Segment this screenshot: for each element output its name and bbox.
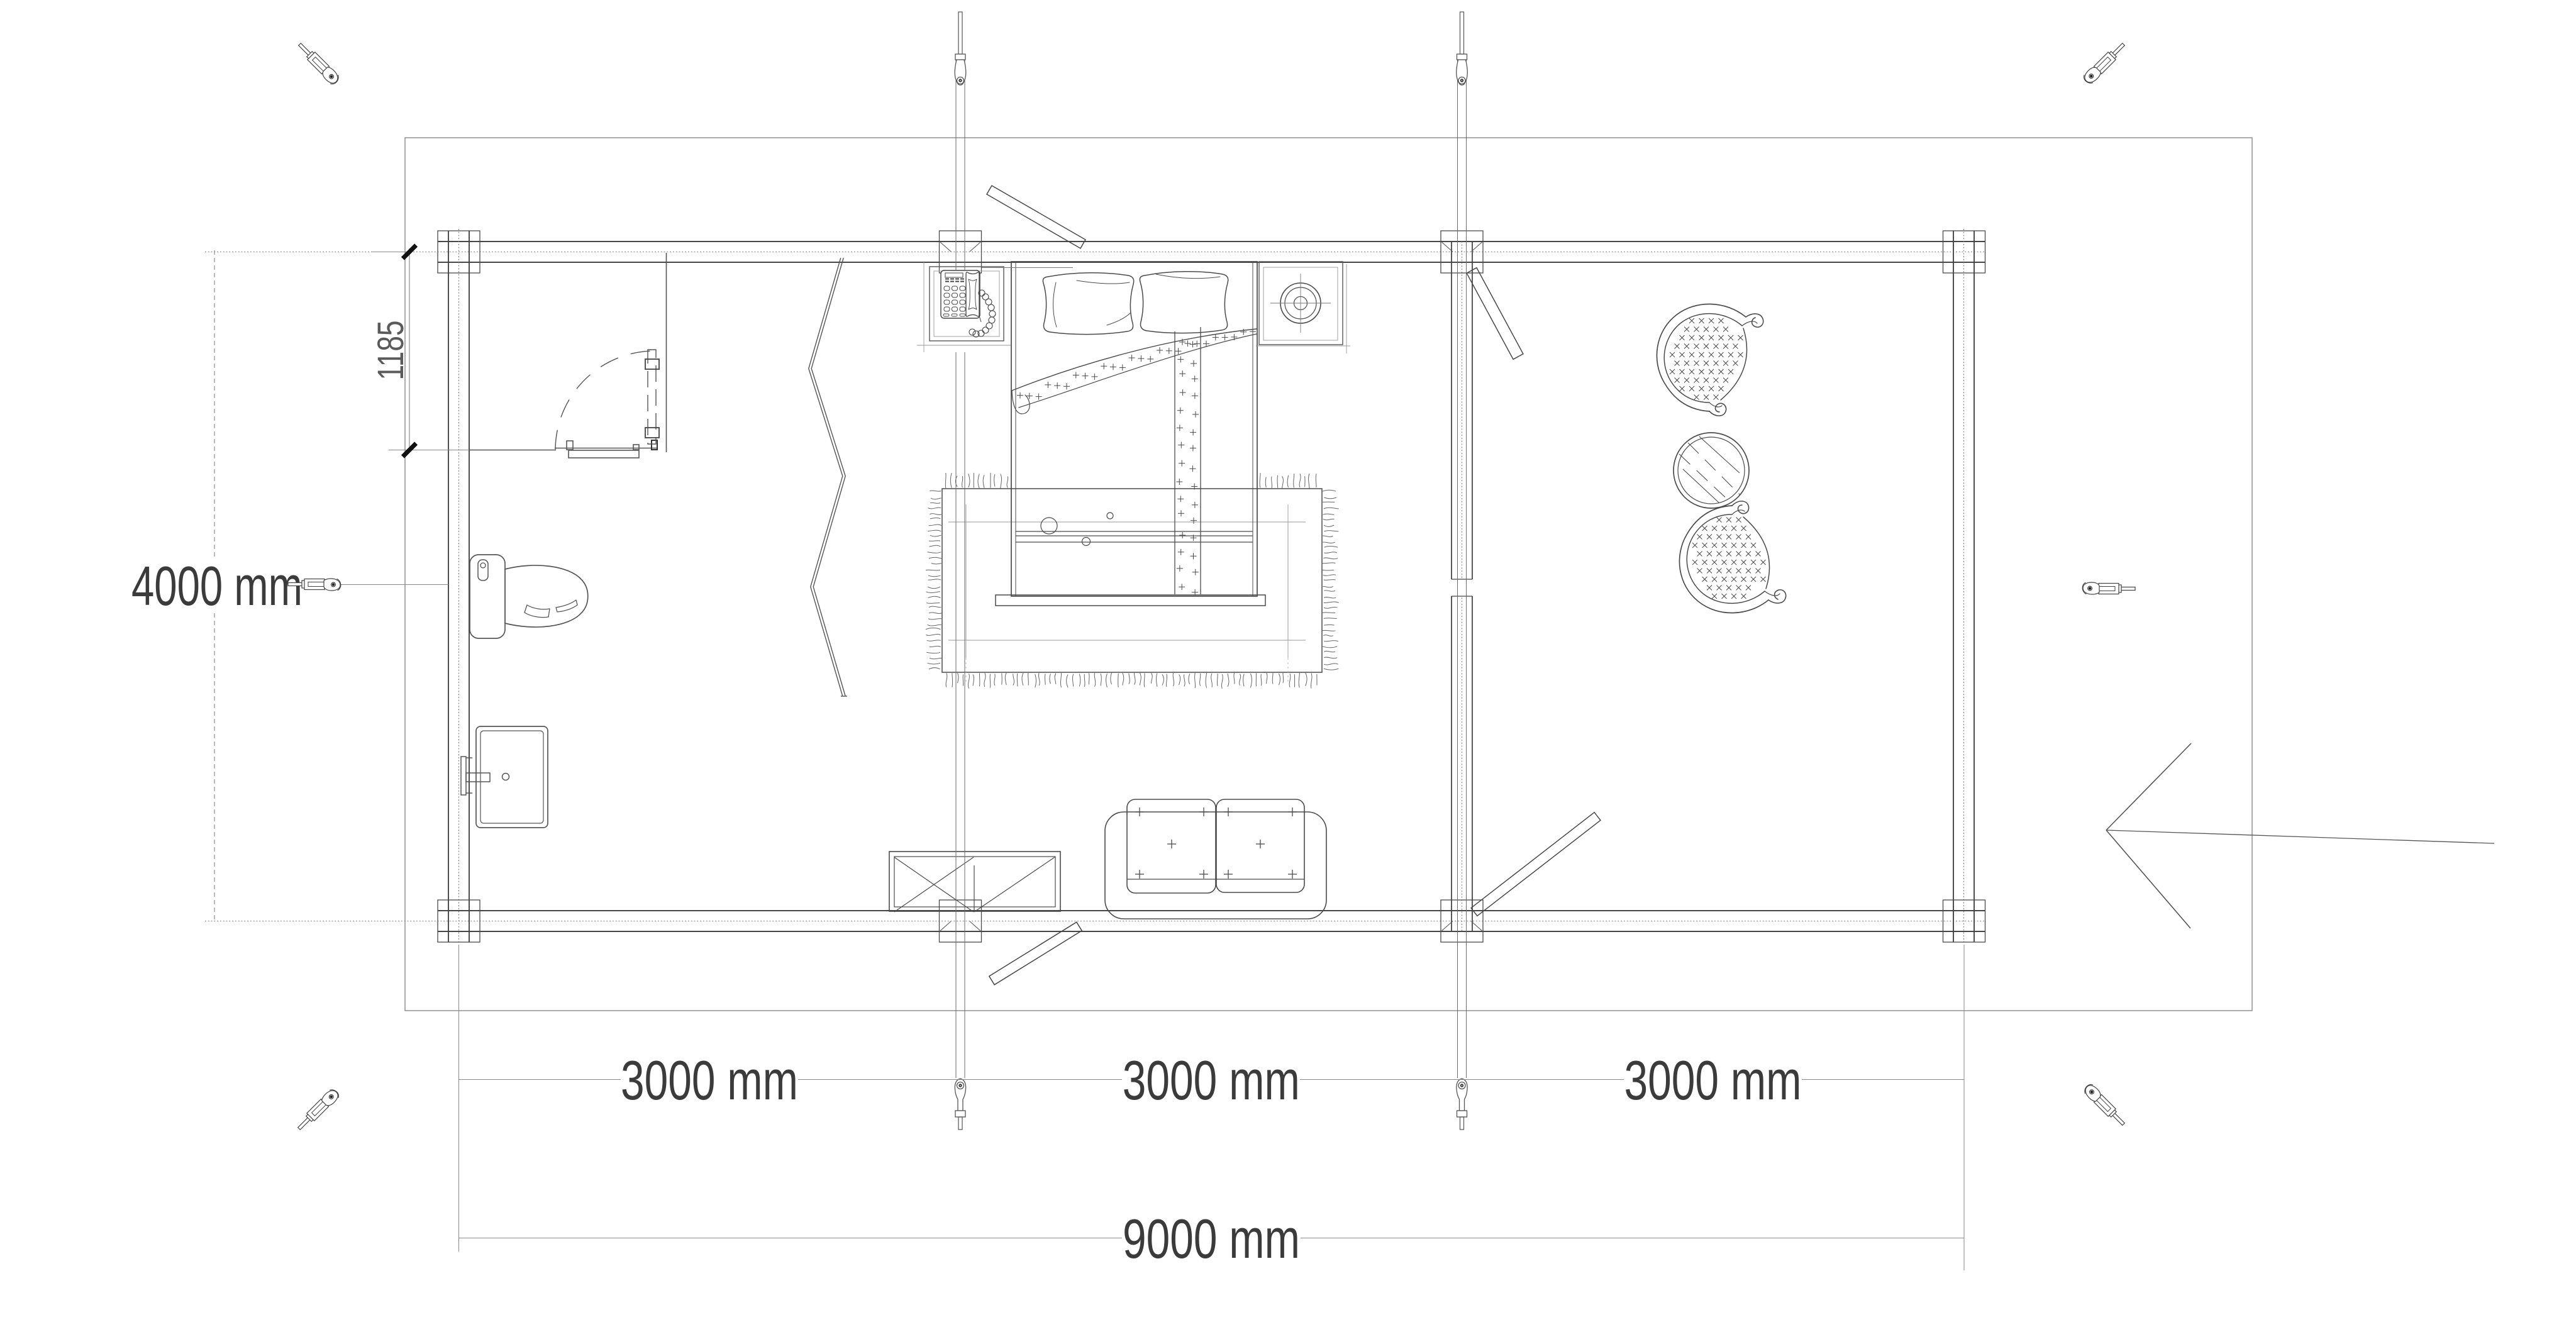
- svg-text:4000 mm: 4000 mm: [131, 555, 303, 617]
- svg-text:3000 mm: 3000 mm: [1123, 1049, 1300, 1111]
- svg-text:9000 mm: 9000 mm: [1123, 1208, 1300, 1270]
- svg-text:3000 mm: 3000 mm: [621, 1049, 798, 1111]
- svg-text:1185: 1185: [370, 321, 411, 380]
- svg-text:3000 mm: 3000 mm: [1624, 1049, 1802, 1111]
